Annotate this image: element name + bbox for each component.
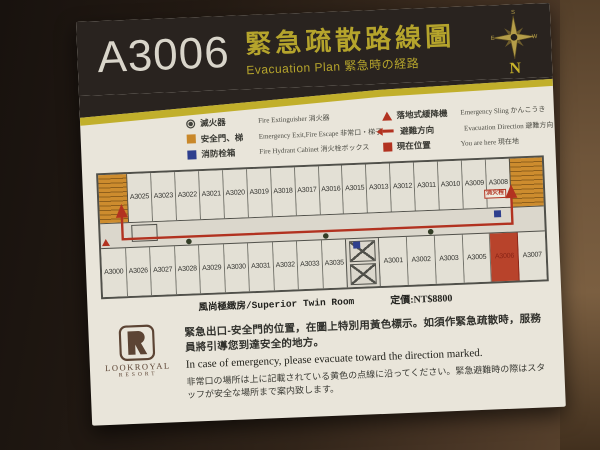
room-cell: A3022	[175, 171, 201, 220]
legend-item-you-are-here: 現在位置 You are here 現在地	[383, 134, 555, 153]
room-cell: A3011	[414, 161, 440, 210]
room-cell: A3023	[151, 172, 177, 221]
compass-west-label: W	[532, 34, 538, 40]
you-are-here-icon	[383, 142, 392, 151]
compass-south-label: S	[511, 10, 515, 16]
room-row-bottom-right-cells: A3001A3002A3003A3005A3006A3007	[379, 231, 547, 286]
legend-label-zh: 避難方向	[400, 122, 464, 137]
floor-plan: A3025A3023A3022A3021A3020A3019A3018A3017…	[96, 155, 549, 299]
room-cell: A3035	[322, 239, 347, 288]
legend-label-en: Emergency Exit,Fire Escape 非常口・梯子	[259, 126, 383, 141]
legend-label-en: Fire Extinguisher 消火器	[258, 113, 330, 126]
floor-plan-wrap: A3025A3023A3022A3021A3020A3019A3018A3017…	[96, 155, 549, 318]
room-cell: A3031	[248, 242, 274, 291]
sign-footer: LOOKROYAL RESORT 緊急出口-安全門的位置，在圖上特別用黃色標示。…	[96, 308, 551, 404]
elevator-icon	[350, 263, 377, 285]
legend-label-en: You are here 現在地	[461, 136, 520, 148]
room-cell: A3026	[126, 247, 152, 296]
legend-label-zh: 消防栓箱	[201, 146, 259, 160]
room-cell: A3001	[379, 236, 409, 285]
room-type-caption: 風尚極緻房/Superior Twin Room	[198, 293, 354, 314]
legend-label-zh: 安全門、梯	[201, 130, 259, 144]
room-cell: A3010	[438, 160, 464, 209]
sign-titles: 緊急疏散路線圖 Evacuation Plan 緊急時の経路	[245, 17, 475, 78]
elevator-left-icon	[131, 223, 158, 241]
room-cell: A3025	[127, 173, 153, 222]
elevator-shaft	[345, 238, 381, 287]
room-cell: A3021	[199, 170, 225, 219]
lookroyal-logo-icon	[118, 324, 155, 361]
room-cell: A3007	[518, 231, 547, 280]
room-cell: A3008	[486, 158, 511, 207]
room-cell: A3015	[342, 164, 368, 213]
wood-wall-edge	[560, 0, 600, 450]
evacuation-sign: A3006 緊急疏散路線圖 Evacuation Plan 緊急時の経路 S E…	[76, 3, 566, 426]
room-cell: A3029	[199, 244, 225, 293]
room-cell: A3002	[407, 235, 437, 284]
price-caption: 定價:NT$8800	[390, 289, 453, 306]
stairwell-left	[98, 174, 129, 223]
room-cell: A3005	[462, 233, 492, 282]
hydrant-label: 消火栓	[484, 188, 506, 198]
evacuation-direction-icon	[382, 129, 393, 132]
legend-label-zh: 現在位置	[397, 138, 461, 153]
emergency-notices: 緊急出口-安全門的位置，在圖上特別用黃色標示。如須作緊急疏散時，服務員將引導您到…	[184, 308, 551, 401]
room-cell: A3030	[224, 243, 250, 292]
compass-east-label: E	[491, 36, 495, 42]
room-cell: A3033	[297, 240, 323, 289]
legend-label-zh: 落地式緩降機	[396, 107, 460, 122]
room-cell: A3013	[366, 163, 392, 212]
room-cell: A3027	[150, 246, 176, 295]
elevator-icon	[349, 240, 376, 262]
room-cell: A3003	[435, 234, 465, 283]
room-cell: A3000	[101, 248, 127, 297]
room-cell: A3032	[273, 241, 299, 290]
room-cell: A3017	[295, 166, 321, 215]
stairwell-right	[509, 157, 544, 206]
emergency-sling-marker	[102, 238, 110, 245]
legend-label-en: Emergency Sling かんこうき	[460, 104, 545, 117]
emergency-sling-icon	[381, 111, 391, 120]
room-cell: A3028	[175, 245, 201, 294]
compass-icon: S E W N	[488, 7, 541, 75]
compass-north-label: N	[509, 60, 522, 76]
room-cell: A3016	[318, 165, 344, 214]
room-cell: A3020	[223, 169, 249, 218]
room-cell: A3012	[390, 162, 416, 211]
emergency-exit-icon	[187, 134, 196, 143]
legend-label-en: Evacuation Direction 避難方向	[464, 119, 554, 133]
room-cell: A3019	[247, 168, 273, 217]
legend-label-zh: 滅火器	[200, 115, 258, 129]
room-number: A3006	[97, 31, 231, 80]
room-cell: A3009	[462, 159, 488, 208]
room-cell: A3018	[271, 167, 297, 216]
fire-hydrant-icon	[187, 150, 196, 159]
lookroyal-logo: LOOKROYAL RESORT	[96, 323, 178, 379]
fire-extinguisher-icon	[186, 119, 195, 128]
room-row-bottom-left-cells: A3000A3026A3027A3028A3029A3030A3031A3032…	[101, 239, 347, 297]
legend-label-en: Fire Hydrant Cabinet 消火栓ボックス	[259, 142, 369, 156]
legend-column-right: 落地式緩降機 Emergency Sling かんこうき 避難方向 Evacua…	[381, 103, 554, 156]
legend-column-left: 滅火器 Fire Extinguisher 消火器 安全門、梯 Emergenc…	[186, 110, 383, 164]
room-cell: A3006	[490, 232, 520, 281]
